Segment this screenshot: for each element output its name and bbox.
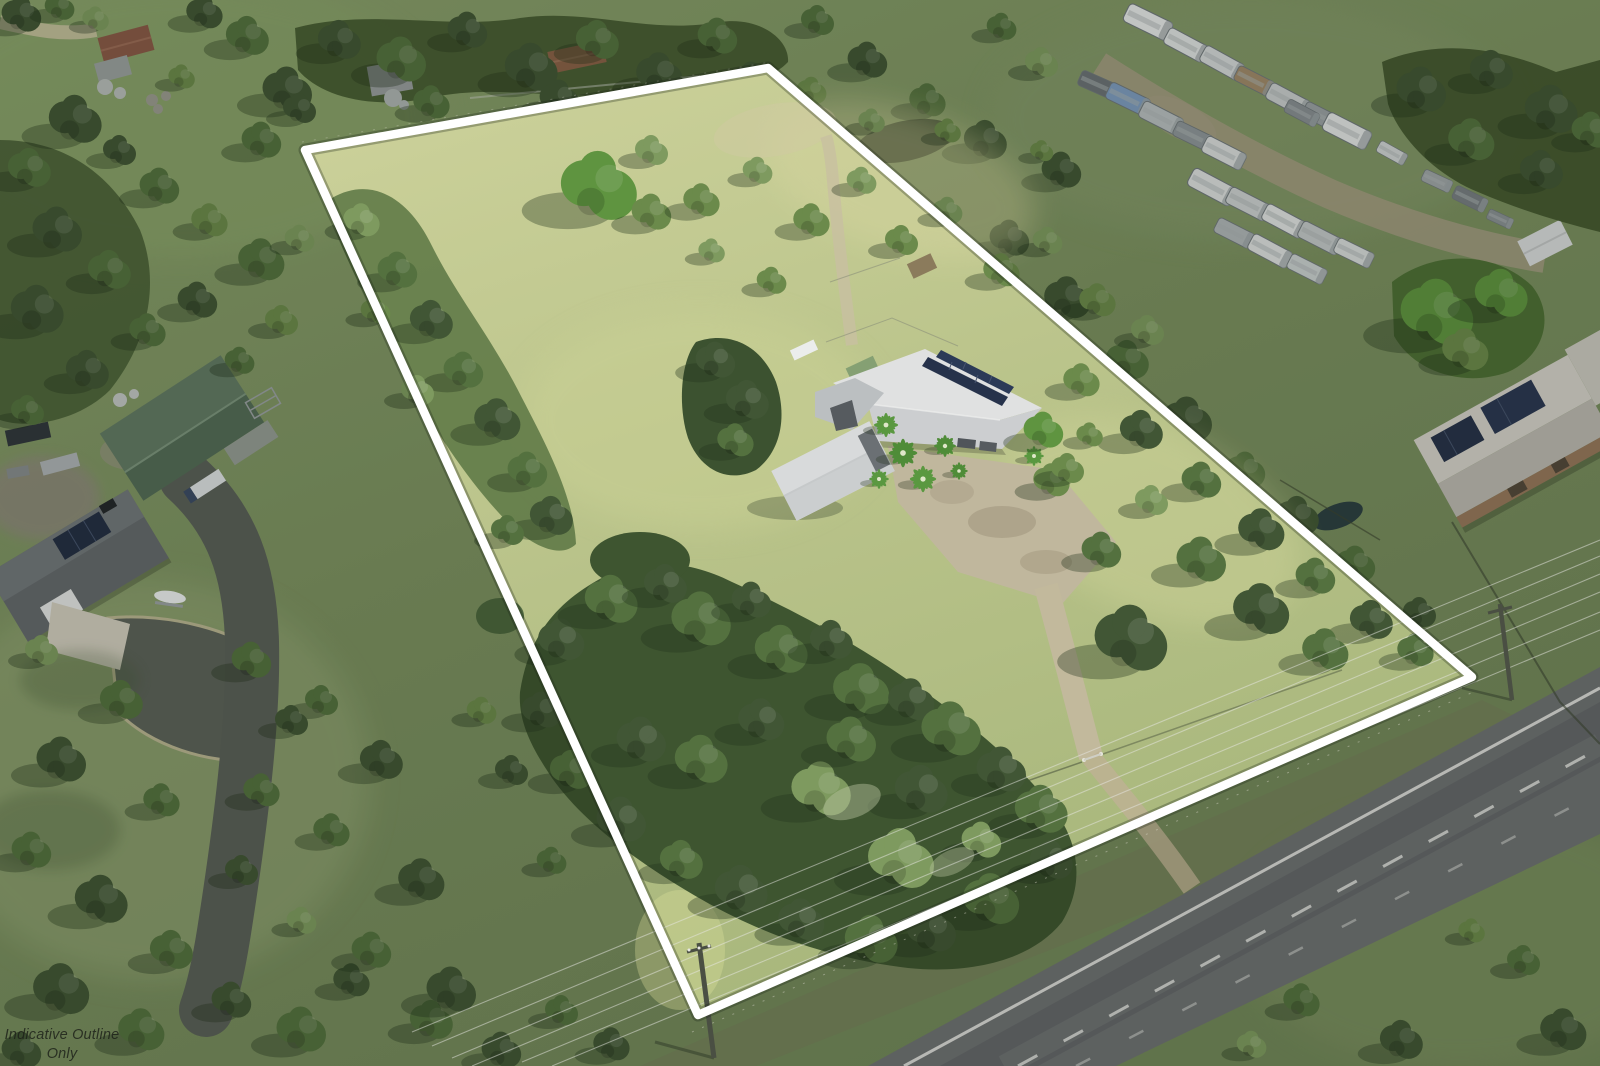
scene bbox=[0, 0, 1600, 1066]
aerial-property-photo: Indicative Outline Only bbox=[0, 0, 1600, 1066]
